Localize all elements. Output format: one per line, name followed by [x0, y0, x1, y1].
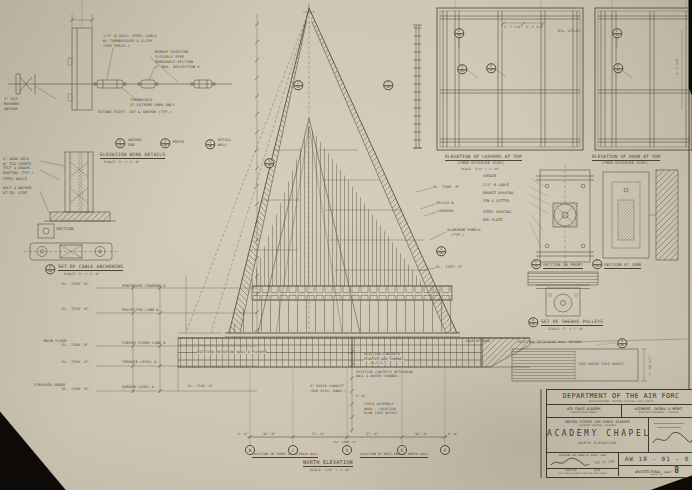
- callout-sheet-ref: A8: [384, 86, 392, 89]
- annotation-label: EL. 7274'-6": [62, 308, 89, 312]
- annotation-label: EL. 7249'-0": [62, 388, 89, 392]
- callout-sheet-ref: A8: [532, 265, 540, 268]
- annotation-label: WELL: [218, 144, 227, 148]
- title-block: DEPARTMENT OF THE AIR FORC HEADQUARTERS …: [546, 389, 692, 478]
- detail-callout: 6A8: [486, 63, 496, 73]
- annotation-label: ROOFING (TYP.): [3, 172, 34, 176]
- annotation-label: PIN & COTTER: [483, 200, 509, 204]
- serial-label: SERIAL NO.: [619, 473, 692, 476]
- annotation-label: 2" RIGID CONDUIT: [310, 385, 344, 388]
- annotation-label: 16'-0": [263, 433, 276, 436]
- detail-callout: 5A8: [454, 28, 464, 38]
- signature-scrawl: [651, 430, 692, 448]
- annotation-label: EL. 7249'-0": [188, 385, 213, 388]
- callout-sheet-ref: A8: [613, 34, 621, 37]
- caption-wire-details: ELEVATION WIRE DETAILS: [100, 153, 165, 159]
- annotation-label: SECTION AT JAMB: [604, 263, 641, 269]
- annotation-label: EXISTING CONCRETE: [364, 353, 400, 356]
- annotation-label: GARDEN LEVEL ℄: [122, 386, 154, 390]
- signature-cell: [648, 418, 692, 452]
- callout-sheet-ref: A8: [487, 69, 495, 72]
- callout-sheet-ref: A8: [46, 270, 54, 273]
- annotation-label: 5'-0": [356, 395, 366, 398]
- callout-sheet-ref: A8: [458, 70, 466, 73]
- title-block-header: DEPARTMENT OF THE AIR FORC HEADQUARTERS …: [547, 390, 692, 405]
- drawing-number: AW 18 - 01 - 0: [619, 453, 692, 462]
- detail-callout: 2A8: [293, 80, 303, 90]
- annotation-label: BED PLATE: [483, 219, 503, 223]
- callout-sheet-ref: A8: [455, 34, 463, 37]
- column-grid-bubble: C: [288, 445, 298, 455]
- annotation-label: SCALE: 3" = 1'-0": [548, 328, 584, 331]
- annotation-label: FINISH FLOOR LINE ℄: [122, 342, 166, 346]
- annotation-label: SCALE: 3/4" = 1'-0": [461, 168, 499, 171]
- annotation-label: TERRACE LEVEL ℄: [122, 361, 157, 365]
- annotation-label: (TYP.): [451, 234, 464, 238]
- callout-sheet-ref: A8: [614, 69, 622, 72]
- annotation-label: 16'-0": [415, 433, 428, 436]
- annotation-label: ANCHOR: [4, 108, 17, 112]
- annotation-label: 5'-0": [238, 433, 248, 436]
- column-grid-bubble: F: [440, 445, 450, 455]
- annotation-label: 4'-2 3/8": [676, 57, 679, 75]
- annotation-label: SECTION IN FRONT: [543, 263, 583, 269]
- detail-callout: 7A8: [383, 80, 393, 90]
- annotation-label: (FROM EXTERIOR SIDE): [457, 162, 504, 166]
- callout-sheet-ref: A8: [116, 144, 124, 147]
- annotation-label: 2" MAX. DEFLECTION ±: [155, 66, 200, 70]
- detail-callout: 1A8: [115, 138, 125, 148]
- annotation-label: SHEAVE: [483, 175, 496, 179]
- callout-sheet-ref: A8: [265, 164, 273, 167]
- annotation-label: SECTION: [56, 227, 73, 231]
- annotation-label: EXTEND EXIST. GUY & ANCHOR (TYP.): [98, 111, 172, 115]
- drawing-title: ACADEMY CHAPEL: [547, 429, 648, 438]
- annotation-label: FINISHED GRADE: [34, 384, 65, 388]
- project-title-row: UNITED STATES AIR FORCE ACADEMY COLORADO…: [547, 418, 692, 453]
- detail-callout: 5A8: [612, 28, 622, 38]
- annotation-label: WALL & WATER CHANNEL: [356, 375, 398, 378]
- annotation-label: EXISTING RETAINING WALL & PLANTER: [197, 351, 267, 354]
- column-grid-bubble: D: [342, 445, 352, 455]
- detail-callout: 2A8: [160, 138, 170, 148]
- annotation-label: 1/2" Ø CABLE: [483, 184, 509, 188]
- agency-architect-row: AIR FORCE ACADEMY CONSTRUCTION AGENCY SK…: [547, 405, 692, 418]
- annotation-label: EL. 7285'-6": [62, 283, 89, 287]
- project-cell: UNITED STATES AIR FORCE ACADEMY COLORADO…: [547, 418, 648, 452]
- approval-number-row: APPROVED FOR CHIEF OF STAFF, USAF DEC 14…: [547, 453, 692, 476]
- annotation-label: BOLT & ANCHOR: [3, 187, 31, 191]
- annotation-label: AT EXTREME ENDS ONLY: [130, 104, 175, 108]
- blueprint-sheet: 1/2" Ø GALV. STEEL CABLEW/ TURNBUCKLES &…: [0, 0, 692, 490]
- annotation-label: FELT & GRAVEL: [3, 167, 31, 171]
- annotation-label: LOCATION IN FRONT OF SETBACK WALL: [252, 453, 318, 458]
- annotation-label: SPLICE ℄: [436, 202, 454, 206]
- annotation-label: 2" WOOD DECK: [3, 158, 29, 162]
- approval-cell: APPROVED FOR CHIEF OF STAFF, USAF DEC 14…: [547, 453, 619, 476]
- detail-callout: 6A8: [613, 63, 623, 73]
- annotation-label: (SEE SPECS.): [103, 45, 130, 49]
- callout-sheet-ref: A8: [593, 265, 601, 268]
- annotation-label: MOUTH: [173, 141, 184, 145]
- annotation-label: 2'-5 1/8": [526, 26, 544, 29]
- annotation-label: 7'-10 1/2": [649, 355, 652, 375]
- annotation-label: 2'-7 7/8": [504, 26, 522, 29]
- detail-callout: 6A8: [531, 259, 541, 269]
- annotation-label: 27'-0": [366, 433, 379, 436]
- stamp-smudge: [654, 423, 684, 424]
- annotation-label: FIELD ASSEMBLY: [364, 403, 394, 406]
- approval-date: DEC 14 1956: [595, 459, 615, 464]
- annotation-label: (N.I.C.): [370, 362, 387, 365]
- column-grid-bubble: E: [397, 445, 407, 455]
- architect-cell: SKIDMORE, OWINGS & MERRI ARCHITECT-ENGIN…: [621, 405, 692, 417]
- drawing-view: NORTH ELEVATION: [547, 441, 648, 445]
- annotation-label: SCALE: 3" = 1'-0": [104, 161, 140, 164]
- detail-callout: 5A8: [457, 64, 467, 74]
- annotation-label: SLAB (SEE NOTES): [364, 412, 398, 415]
- annotation-label: EL. 7264'-0": [62, 344, 89, 348]
- annotation-label: (SEE NOTES THIS SHEET): [578, 363, 625, 366]
- caption-cable-anchoring: SET OF CABLE ANCHORING: [58, 265, 123, 271]
- annotation-label: EL. 7340'-0": [433, 186, 460, 190]
- detail-callout: 4A8: [436, 246, 446, 256]
- callout-sheet-ref: A8: [618, 344, 626, 347]
- detail-callout: 4A8: [45, 264, 55, 274]
- callout-sheet-ref: A8: [529, 323, 537, 326]
- column-grid-bubble: B: [245, 445, 255, 455]
- annotation-label: STEEL HOUSING: [483, 211, 511, 215]
- annotation-label: PENTHOUSE FRAMING ℄: [122, 285, 166, 289]
- annotation-label: LOUVERS: [438, 210, 454, 214]
- stamp-smudge: [657, 427, 681, 428]
- annotation-label: EDGE OF ROAD: [466, 340, 490, 343]
- callout-sheet-ref: A8: [294, 86, 302, 89]
- annotation-label: END: [128, 144, 135, 148]
- detail-callout: 3A8: [264, 158, 274, 168]
- blueprint-photo: { "colors":{"paper":"#cdc5b3","ink":"#4c…: [0, 0, 692, 490]
- project-location: COLORADO SPRINGS, COLORADO: [547, 424, 648, 427]
- callout-sheet-ref: A8: [206, 145, 214, 148]
- caption-north-elevation: NORTH ELEVATION: [303, 460, 353, 467]
- callout-sheet-ref: A8: [161, 144, 169, 147]
- annotation-label: SCALE: 1/8" = 1'-0": [310, 469, 350, 472]
- annotation-label: (FROM EXTERIOR SIDE): [601, 162, 648, 166]
- annotation-label: EL. 7258'-6": [62, 361, 89, 365]
- annotation-label: BRONZE BUSHING: [483, 192, 514, 196]
- annotation-label: (SEE ELEC. DWGS.): [310, 390, 346, 393]
- detail-callout: 7A8: [592, 259, 602, 269]
- drawing-number-cell: AW 18 - 01 - 0 ARCHITECTURAL SHEET 8 SER…: [619, 453, 692, 476]
- detail-callout: 9A8: [617, 338, 627, 348]
- annotation-label: EL. 7297'-6": [436, 266, 463, 270]
- architect-sub: ARCHITECT-ENGINEERS · CHICAGO: [622, 411, 692, 414]
- annotation-label: MTG. STILES: [558, 30, 580, 33]
- annotation-label: SCALE: 3" = 1'-0": [64, 273, 100, 276]
- annotation-label: EL. 7264'-0": [334, 441, 357, 444]
- annotation-label: AT EA. SIDE: [3, 192, 27, 196]
- detail-callout: 3A8: [205, 139, 215, 149]
- annotation-label: EXISTING RETAINING WALL BEYOND: [518, 341, 582, 344]
- headquarters-subtitle: HEADQUARTERS UNITED STATES AIR FORCE: [547, 400, 692, 403]
- agency-cell: AIR FORCE ACADEMY CONSTRUCTION AGENCY: [547, 405, 621, 417]
- annotation-label: 27'-0": [312, 433, 325, 436]
- department-title: DEPARTMENT OF THE AIR FORC: [547, 392, 692, 400]
- annotation-label: PROJECTED LINE ℄: [122, 309, 159, 313]
- annotation-label: 5'-0": [448, 433, 458, 436]
- detail-callout: 8A8: [528, 317, 538, 327]
- agency-sub: CONSTRUCTION AGENCY: [547, 411, 621, 414]
- callout-sheet-ref: A8: [437, 252, 445, 255]
- agency-footer: AIR FORCE ACADEMY CONSTRUCTION AGENCY: [547, 472, 618, 475]
- annotation-label: STEEL ANGLE: [3, 178, 27, 182]
- caption-sheave-pulleys: SET OF SHEAVE PULLEYS: [541, 320, 603, 326]
- approval-signature: [550, 457, 590, 468]
- annotation-label: LOCATION OF WEST END OF NORTH WALL: [360, 453, 428, 458]
